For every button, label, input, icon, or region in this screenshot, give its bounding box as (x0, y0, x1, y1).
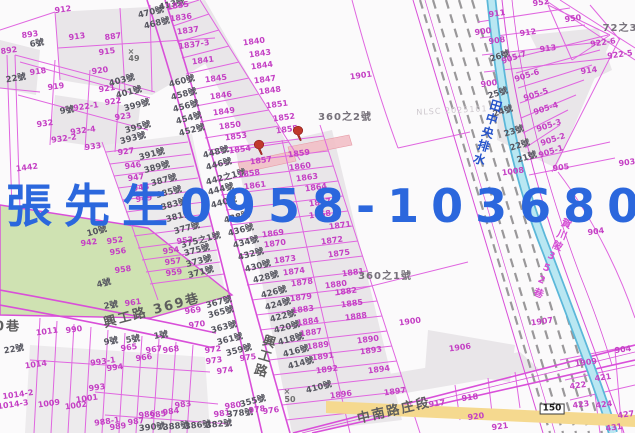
cadastral-map-viewport[interactable]: 912413號470號468號1835183618371837-31841893… (0, 0, 635, 433)
pushpin-icon[interactable] (253, 139, 266, 159)
contact-overlay-text: 張先生0958-103680 (6, 183, 635, 229)
pushpin-icon[interactable] (292, 125, 305, 145)
